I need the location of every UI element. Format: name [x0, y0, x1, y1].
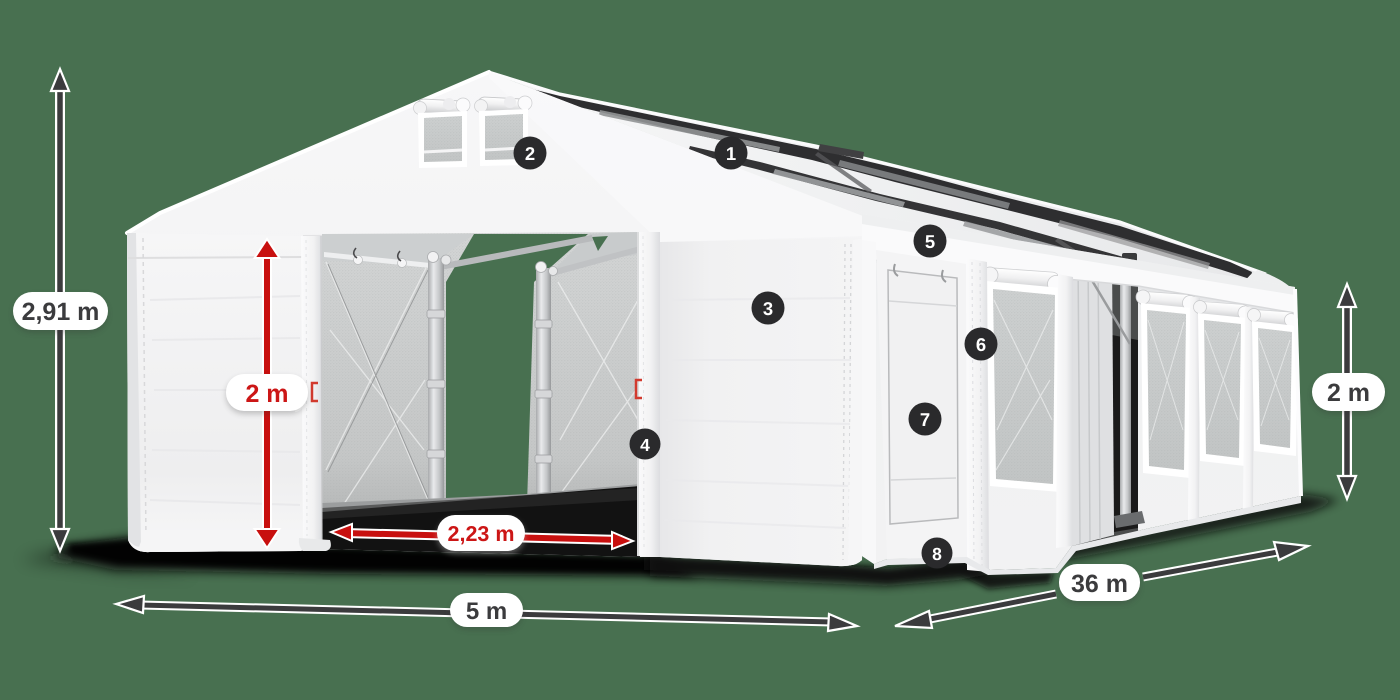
svg-text:5: 5: [925, 231, 935, 252]
svg-text:2 m: 2 m: [245, 380, 288, 408]
svg-text:4: 4: [640, 435, 650, 455]
svg-text:2: 2: [525, 143, 535, 164]
svg-text:36 m: 36 m: [1071, 570, 1128, 598]
svg-text:7: 7: [920, 409, 930, 430]
svg-text:8: 8: [932, 544, 942, 564]
svg-text:3: 3: [763, 298, 773, 319]
svg-text:2 m: 2 m: [1327, 379, 1370, 407]
svg-text:2,23 m: 2,23 m: [448, 522, 515, 546]
svg-text:2,91 m: 2,91 m: [22, 298, 100, 326]
svg-text:5 m: 5 m: [466, 598, 507, 625]
svg-text:6: 6: [976, 334, 986, 355]
svg-text:1: 1: [726, 143, 736, 164]
